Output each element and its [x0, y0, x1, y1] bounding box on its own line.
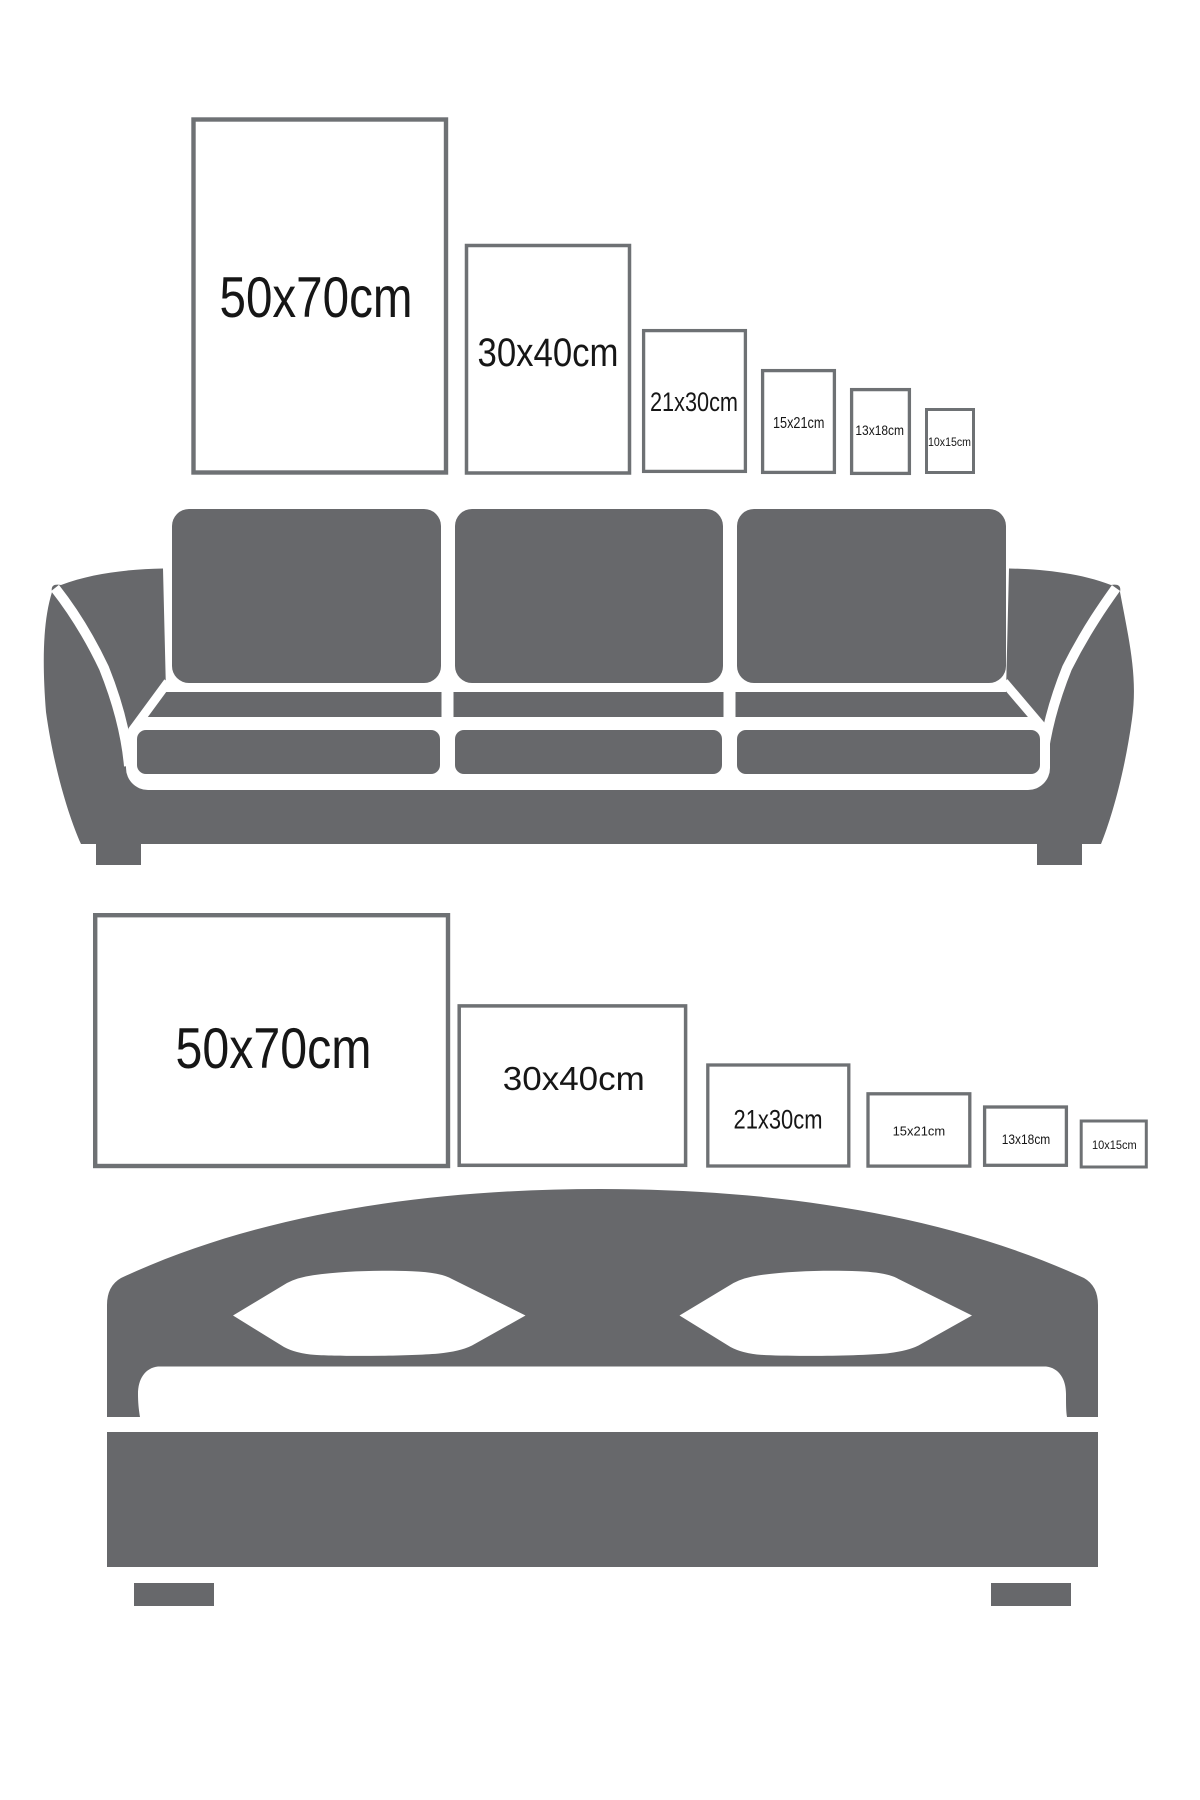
svg-text:15x21cm: 15x21cm — [773, 415, 824, 432]
svg-text:13x18cm: 13x18cm — [855, 423, 904, 438]
svg-text:15x21cm: 15x21cm — [893, 1123, 946, 1138]
svg-text:30x40cm: 30x40cm — [503, 1060, 645, 1097]
svg-text:30x40cm: 30x40cm — [478, 331, 619, 375]
svg-text:10x15cm: 10x15cm — [1092, 1138, 1137, 1152]
svg-text:21x30cm: 21x30cm — [734, 1104, 823, 1134]
svg-text:50x70cm: 50x70cm — [176, 1017, 372, 1081]
svg-text:21x30cm: 21x30cm — [650, 387, 738, 417]
svg-text:13x18cm: 13x18cm — [1002, 1131, 1051, 1147]
svg-text:50x70cm: 50x70cm — [220, 266, 413, 330]
svg-text:10x15cm: 10x15cm — [928, 435, 971, 449]
